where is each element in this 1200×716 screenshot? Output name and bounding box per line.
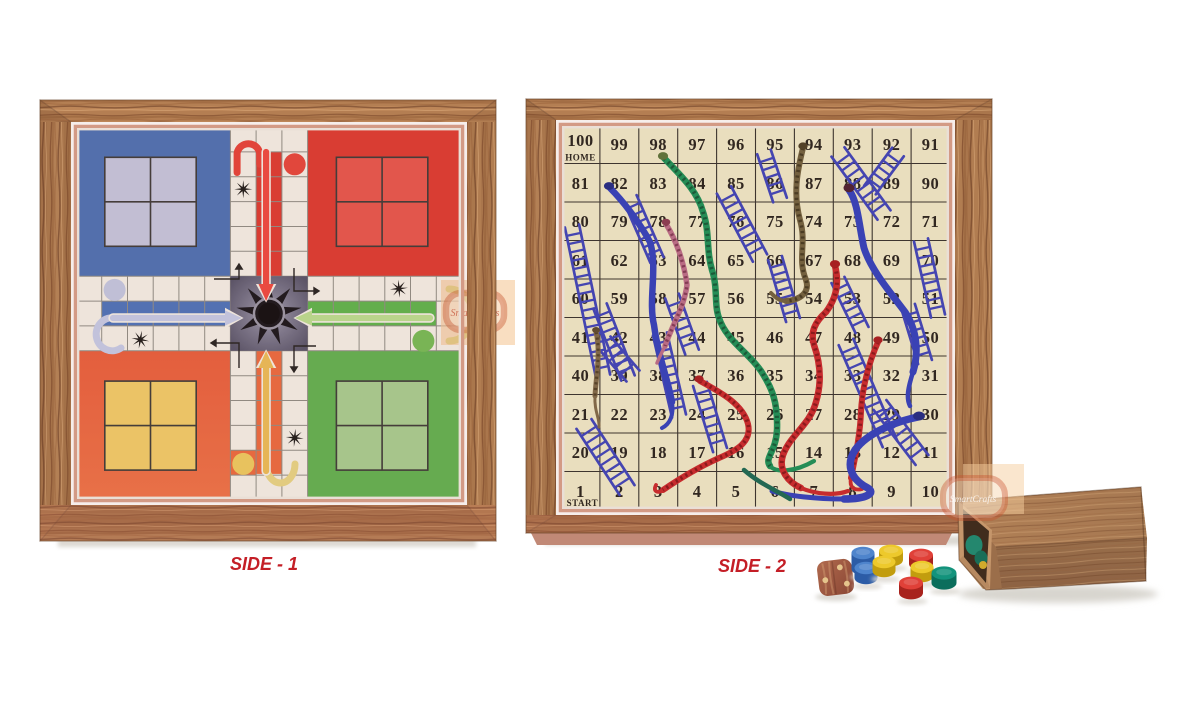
svg-text:SIDE - 1: SIDE - 1 xyxy=(230,554,298,574)
svg-text:SIDE - 2: SIDE - 2 xyxy=(718,556,786,576)
svg-text:SmartCrafts: SmartCrafts xyxy=(950,494,997,505)
